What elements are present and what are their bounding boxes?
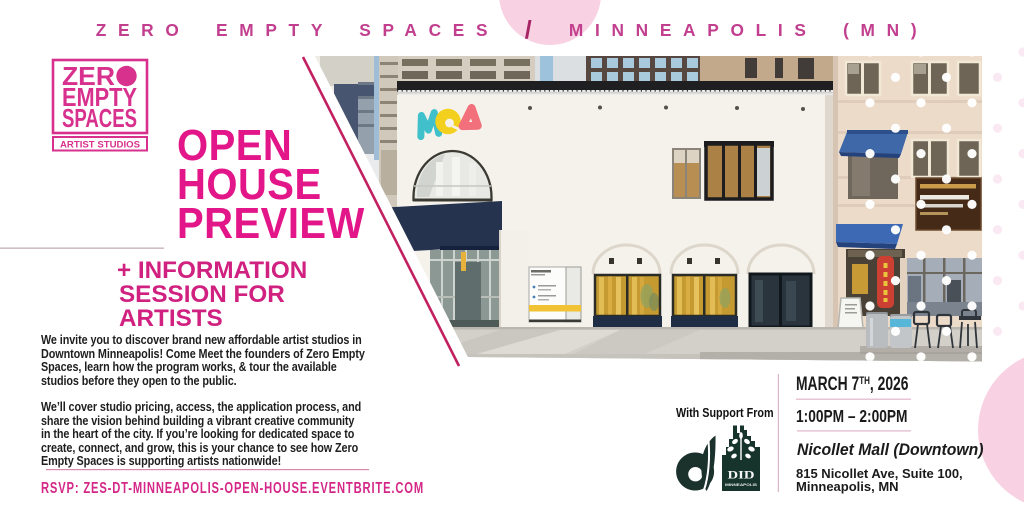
- svg-text:ARTIST STUDIOS: ARTIST STUDIOS: [60, 140, 140, 150]
- svg-text:DID: DID: [728, 470, 755, 482]
- svg-text:SPACES: SPACES: [62, 103, 137, 133]
- svg-text:MINNEAPOLIS: MINNEAPOLIS: [725, 482, 757, 487]
